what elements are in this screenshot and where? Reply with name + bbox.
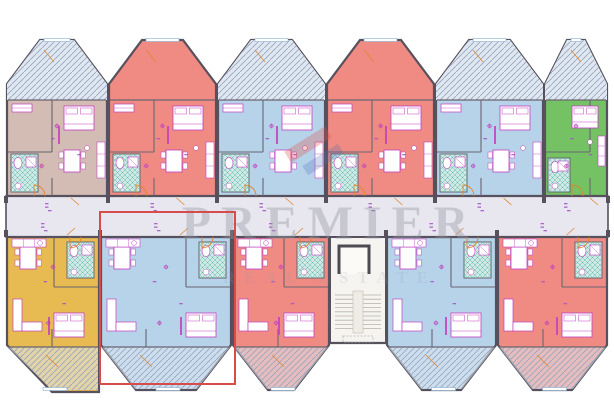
- micro-label-mark: [48, 210, 52, 211]
- dimension-rod: [276, 126, 278, 144]
- pillow: [301, 315, 313, 321]
- pillow: [453, 315, 465, 321]
- dining-table: [400, 247, 416, 269]
- sofa: [13, 299, 22, 331]
- chair: [15, 260, 20, 266]
- micro-label-mark: [266, 138, 270, 139]
- micro-label-mark: [402, 154, 406, 155]
- chair: [81, 163, 86, 169]
- chair: [161, 163, 166, 169]
- sink: [521, 146, 526, 151]
- sofa: [513, 322, 533, 331]
- micro-label-mark: [44, 230, 48, 231]
- dining-table: [511, 247, 527, 269]
- micro-label-mark: [430, 227, 434, 228]
- unit-bottom-3: [233, 237, 329, 391]
- sink: [418, 241, 423, 246]
- dining-table: [246, 247, 262, 269]
- washbasin: [335, 183, 341, 189]
- washbasin: [71, 269, 77, 275]
- unit-top-1: [7, 39, 107, 197]
- window: [43, 388, 67, 391]
- dining-table: [384, 150, 400, 172]
- dimension-rod: [58, 126, 60, 144]
- dining-table: [493, 150, 509, 172]
- chair: [15, 249, 20, 255]
- dimension-rod: [556, 317, 558, 335]
- chair: [263, 260, 268, 266]
- micro-label-mark: [293, 154, 297, 155]
- toilet: [225, 158, 233, 169]
- kitchen-counter: [533, 142, 541, 178]
- micro-label-mark: [41, 227, 45, 228]
- unit-top-3: [218, 39, 325, 197]
- floorplan-drawing: [0, 0, 614, 416]
- sofa: [504, 299, 513, 331]
- washbasin: [579, 269, 585, 275]
- corridor: [4, 196, 610, 237]
- pillow: [286, 315, 298, 321]
- pillow: [71, 315, 83, 321]
- window: [432, 388, 456, 391]
- micro-label-mark: [484, 138, 488, 139]
- dining-table: [64, 150, 80, 172]
- washbasin: [444, 183, 450, 189]
- toilet: [14, 158, 22, 169]
- sofa: [402, 322, 422, 331]
- chair: [183, 163, 188, 169]
- chair: [506, 249, 511, 255]
- pillow: [393, 108, 405, 114]
- window: [543, 388, 567, 391]
- micro-label-mark: [567, 210, 571, 211]
- sink: [412, 146, 417, 151]
- kitchen-counter: [315, 142, 323, 178]
- pillow: [299, 108, 311, 114]
- washbasin: [226, 183, 232, 189]
- sofa: [22, 322, 42, 331]
- balcony-hatch: [7, 40, 107, 100]
- chair: [506, 260, 511, 266]
- chair: [528, 260, 533, 266]
- dimension-rod: [445, 317, 447, 335]
- micro-label-mark: [564, 207, 568, 208]
- micro-label-mark: [375, 138, 379, 139]
- balcony-hatch: [8, 347, 98, 390]
- unit-top-4: [327, 39, 434, 197]
- pillow: [81, 108, 93, 114]
- micro-label-mark: [541, 223, 545, 224]
- micro-label-mark: [372, 210, 376, 211]
- unit-bottom-5: [498, 237, 607, 391]
- kitchen-counter: [206, 142, 214, 178]
- unit-top-6: [545, 39, 607, 197]
- dining-table: [166, 150, 182, 172]
- elevator-shaft: [339, 246, 369, 274]
- toilet: [116, 158, 124, 169]
- chair: [263, 249, 268, 255]
- micro-label-mark: [564, 303, 568, 304]
- pillow: [190, 108, 202, 114]
- micro-label-mark: [369, 207, 373, 208]
- micro-label-mark: [45, 207, 49, 208]
- pillow: [587, 108, 597, 114]
- micro-label-mark: [45, 203, 49, 204]
- chair: [59, 163, 64, 169]
- micro-label-mark: [260, 207, 264, 208]
- pillow: [56, 315, 68, 321]
- sink: [38, 241, 43, 246]
- chair: [37, 249, 42, 255]
- window: [271, 388, 295, 391]
- selected-unit-highlight: [99, 211, 236, 385]
- pillow: [574, 108, 584, 114]
- micro-label-mark: [272, 230, 276, 231]
- sofa: [393, 299, 402, 331]
- pillow: [502, 108, 514, 114]
- chair: [379, 152, 384, 158]
- washbasin: [552, 183, 558, 189]
- micro-label-mark: [511, 154, 515, 155]
- window: [364, 39, 397, 42]
- sink: [85, 146, 90, 151]
- chair: [395, 249, 400, 255]
- sofa: [239, 299, 248, 331]
- window: [571, 39, 581, 42]
- micro-label-mark: [369, 203, 373, 204]
- chair: [488, 163, 493, 169]
- chair: [488, 152, 493, 158]
- balcony-hatch: [436, 40, 543, 100]
- chair: [59, 152, 64, 158]
- chair: [417, 249, 422, 255]
- pillow: [284, 108, 296, 114]
- chair: [401, 163, 406, 169]
- micro-label-mark: [478, 207, 482, 208]
- micro-label-mark: [77, 154, 81, 155]
- washbasin: [15, 183, 21, 189]
- window: [473, 39, 506, 42]
- micro-label-mark: [260, 203, 264, 204]
- window: [255, 39, 288, 42]
- sink: [588, 140, 593, 145]
- micro-label-mark: [269, 223, 273, 224]
- micro-label-mark: [430, 223, 434, 224]
- micro-label-mark: [478, 203, 482, 204]
- micro-label-mark: [544, 230, 548, 231]
- micro-label-mark: [453, 303, 457, 304]
- dining-table: [275, 150, 291, 172]
- unit-top-5: [436, 39, 543, 197]
- micro-label-mark: [589, 154, 593, 155]
- balcony-hatch: [545, 40, 607, 100]
- washbasin: [301, 269, 307, 275]
- micro-label-mark: [269, 227, 273, 228]
- micro-label-mark: [541, 281, 545, 282]
- window: [156, 388, 180, 391]
- corridor-floor: [6, 196, 608, 237]
- micro-label-mark: [430, 281, 434, 282]
- balcony-hatch: [234, 347, 328, 389]
- chair: [379, 163, 384, 169]
- unit-bottom-4: [387, 237, 496, 391]
- dimension-rod: [278, 317, 280, 335]
- sink: [264, 241, 269, 246]
- chair: [81, 152, 86, 158]
- micro-label-mark: [41, 223, 45, 224]
- unit-top-2: [109, 39, 216, 197]
- dining-table: [20, 247, 36, 269]
- micro-label-mark: [541, 227, 545, 228]
- micro-label-mark: [157, 138, 161, 139]
- micro-label-mark: [151, 207, 155, 208]
- pillow: [564, 315, 576, 321]
- chair: [241, 249, 246, 255]
- dimension-rod: [167, 126, 169, 144]
- pillow: [175, 108, 187, 114]
- washbasin: [468, 269, 474, 275]
- toilet: [443, 158, 451, 169]
- micro-label-mark: [271, 281, 275, 282]
- stairwell: [330, 237, 386, 343]
- kitchen-counter: [424, 142, 432, 178]
- micro-label-mark: [151, 203, 155, 204]
- pillow: [517, 108, 529, 114]
- chair: [241, 260, 246, 266]
- chair: [528, 249, 533, 255]
- chair: [417, 260, 422, 266]
- window: [146, 39, 179, 42]
- micro-label-mark: [433, 230, 437, 231]
- chair: [292, 163, 297, 169]
- kitchen-counter: [97, 142, 105, 178]
- sink: [529, 241, 534, 246]
- micro-label-mark: [62, 303, 66, 304]
- sofa: [248, 322, 268, 331]
- micro-label-mark: [51, 138, 55, 139]
- toilet: [334, 158, 342, 169]
- chair: [510, 163, 515, 169]
- micro-label-mark: [291, 303, 295, 304]
- micro-label-mark: [184, 154, 188, 155]
- sink: [303, 146, 308, 151]
- pillow: [408, 108, 420, 114]
- micro-label-mark: [263, 210, 267, 211]
- chair: [161, 152, 166, 158]
- micro-label-mark: [570, 138, 574, 139]
- dimension-rod: [385, 126, 387, 144]
- pillow: [66, 108, 78, 114]
- balcony-hatch: [218, 40, 325, 100]
- washbasin: [117, 183, 123, 189]
- floorplan-image: PREMIER REAL ESTATE: [0, 0, 614, 416]
- chair: [395, 260, 400, 266]
- pillow: [468, 315, 480, 321]
- micro-label-mark: [44, 281, 48, 282]
- pillow: [579, 315, 591, 321]
- dimension-rod: [494, 126, 496, 144]
- kitchen-counter: [598, 136, 605, 166]
- dimension-rod: [48, 317, 50, 335]
- micro-label-mark: [564, 203, 568, 204]
- unit-bottom-1: [7, 237, 99, 392]
- sink: [194, 146, 199, 151]
- chair: [270, 163, 275, 169]
- micro-label-mark: [481, 210, 485, 211]
- window: [44, 39, 70, 42]
- stair-stringer: [353, 291, 363, 333]
- chair: [270, 152, 275, 158]
- chair: [37, 260, 42, 266]
